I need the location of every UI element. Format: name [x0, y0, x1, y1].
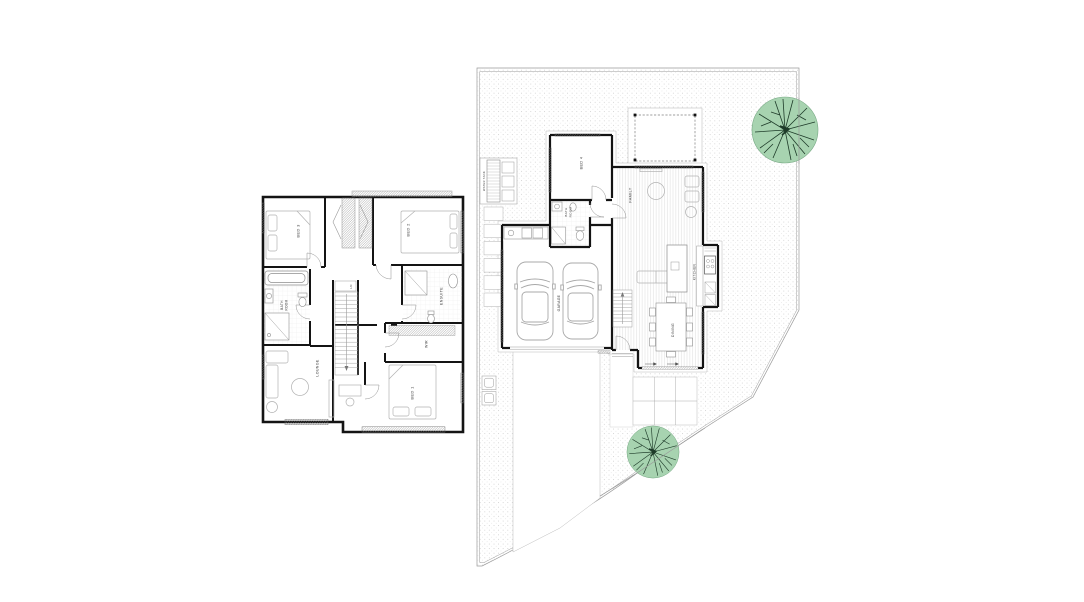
- tree-2: [627, 426, 679, 478]
- label-ground-bath-2: ROOM: [569, 206, 573, 217]
- driveway: [513, 348, 600, 552]
- wir-wardrobe: [389, 326, 455, 336]
- car-2: [561, 263, 601, 339]
- bed3-bed: [266, 211, 310, 259]
- label-kitchen: KITCHEN: [693, 263, 697, 280]
- family-floor: [617, 168, 703, 290]
- label-dining: DINING: [671, 323, 675, 337]
- bed2-window: [461, 211, 464, 253]
- label-garage: GARAGE: [557, 294, 561, 311]
- laundry-bench: [504, 227, 548, 239]
- label-wir: WIR: [424, 340, 428, 348]
- bed1-window: [362, 427, 445, 432]
- label-bed4: BED 4: [579, 157, 583, 170]
- pergola: [628, 108, 702, 168]
- upper-floor-plan: BED 3 BED 2 BATH ROOM ENSUITE LN WIR LOU…: [255, 185, 470, 445]
- lounge-bay-window: [285, 419, 328, 425]
- label-bed2: BED 2: [406, 223, 411, 237]
- robe-closets: [333, 198, 372, 248]
- car-1: [515, 262, 555, 340]
- label-bed3: BED 3: [296, 224, 301, 238]
- label-bed1: BED 1: [410, 386, 415, 400]
- label-water-tank: WATER TANK: [482, 171, 486, 191]
- front-path: [610, 352, 633, 427]
- bed3-window: [262, 203, 265, 233]
- water-tank: WATER TANK: [480, 158, 517, 204]
- label-ensuite: ENSUITE: [439, 287, 443, 305]
- bed1-side-window: [461, 373, 464, 403]
- label-family: FAMILY: [628, 187, 632, 202]
- ground-floor-site-plan: WATER TANK: [470, 60, 825, 575]
- rear-deck: [633, 377, 697, 425]
- lounge-window: [262, 355, 265, 379]
- upper-stairs: [335, 292, 358, 375]
- label-linen: LN: [349, 284, 353, 289]
- label-lounge: LOUNGE: [315, 359, 319, 377]
- label-bathroom-2: ROOM: [285, 299, 289, 310]
- bathtub: [265, 271, 308, 285]
- label-ground-bath-1: BATH: [564, 207, 568, 216]
- upper-roof-band: [352, 191, 452, 197]
- label-bathroom-1: BATH: [280, 300, 284, 310]
- floor-plan-canvas: BED 3 BED 2 BATH ROOM ENSUITE LN WIR LOU…: [0, 0, 1084, 602]
- tree-1: [752, 97, 818, 163]
